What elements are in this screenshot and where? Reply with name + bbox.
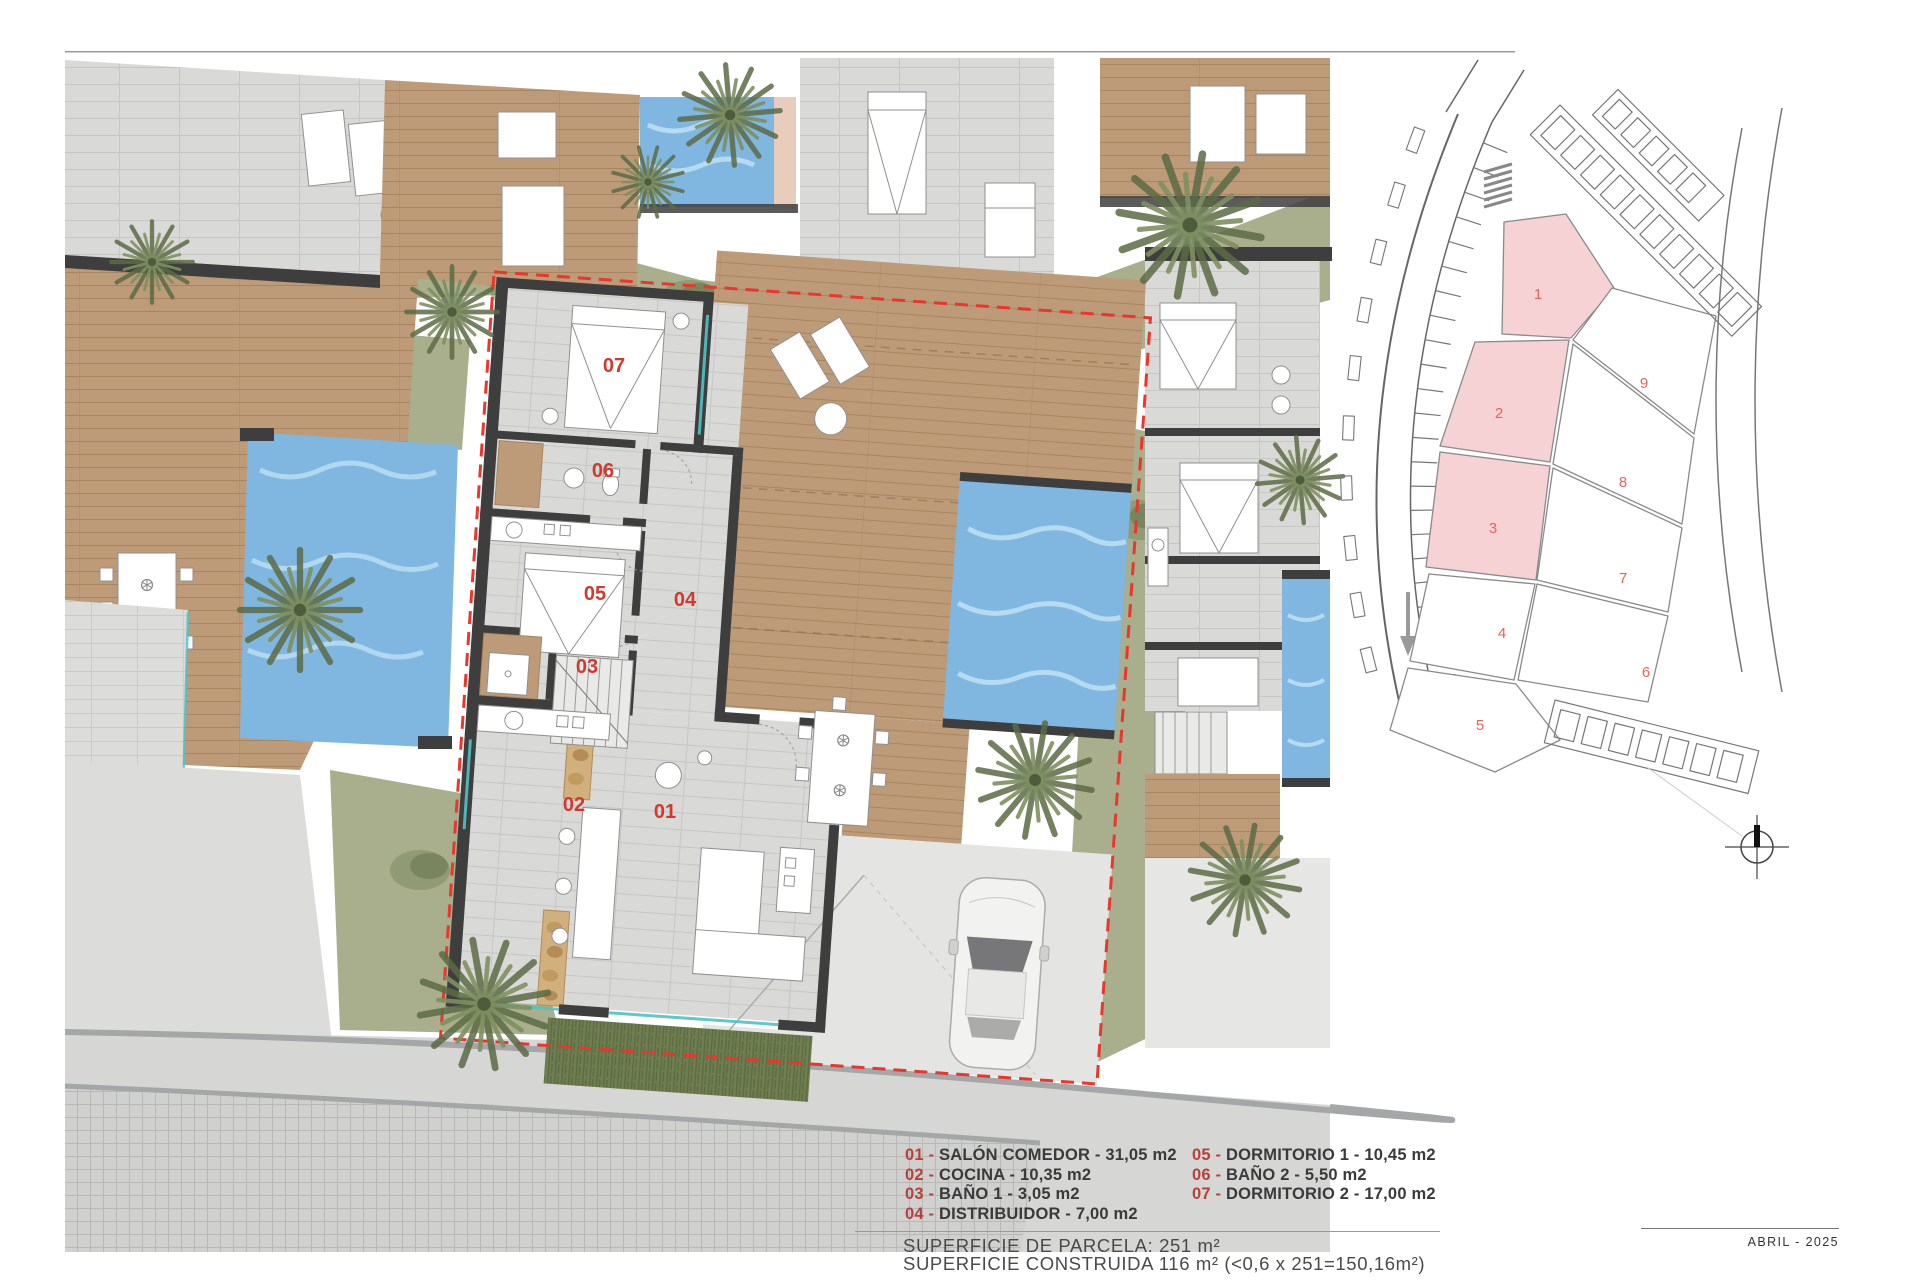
floor-plan-illustration: 01 02 03 04 05 06 07: [0, 0, 1920, 1280]
site-location-map: 1 2 3 4 5 6 7 8 9: [1341, 60, 1799, 793]
legend-label: BAÑO 1 - 3,05 m2: [939, 1185, 1080, 1203]
legend-label: SALÓN COMEDOR - 31,05 m2: [939, 1146, 1177, 1164]
built-surface-text: SUPERFICIE CONSTRUIDA 116 m² (<0,6 x 251…: [903, 1256, 1425, 1273]
summary-rule: [855, 1231, 1440, 1232]
plot-number-7: 7: [1619, 570, 1627, 587]
legend-label: COCINA - 10,35 m2: [939, 1166, 1091, 1184]
legend-row: 03BAÑO 1 - 3,05 m2: [905, 1185, 1177, 1205]
plot-2: [1440, 340, 1569, 462]
legend-num: 01: [905, 1146, 939, 1164]
legend-label: DISTRIBUIDOR - 7,00 m2: [939, 1205, 1138, 1223]
room-label-04: 04: [674, 589, 697, 611]
site-plots: [1390, 214, 1716, 772]
plot-number-2: 2: [1495, 405, 1503, 422]
date-rule: [1641, 1228, 1839, 1229]
plot-number-4: 4: [1498, 625, 1506, 642]
legend-num: 04: [905, 1205, 939, 1223]
plot-3: [1426, 452, 1550, 580]
plot-4: [1410, 574, 1535, 680]
plot-number-9: 9: [1640, 375, 1648, 392]
sheet-top-rule: [65, 51, 1515, 53]
legend-label: DORMITORIO 2 - 17,00 m2: [1226, 1185, 1436, 1203]
room-label-03: 03: [576, 656, 598, 678]
legend-row: 04DISTRIBUIDOR - 7,00 m2: [905, 1205, 1177, 1225]
building-strip-bottom: [1544, 700, 1758, 793]
legend-row: 05DORMITORIO 1 - 10,45 m2: [1192, 1146, 1436, 1166]
room-label-07: 07: [603, 355, 625, 377]
plan-sheet: 01 02 03 04 05 06 07: [0, 0, 1920, 1280]
room-label-01: 01: [654, 801, 676, 823]
date-block: ABRIL - 2025: [1641, 1228, 1839, 1249]
surface-summary: SUPERFICIE DE PARCELA: 251 m² SUPERFICIE…: [903, 1238, 1425, 1273]
legend-label: BAÑO 2 - 5,50 m2: [1226, 1166, 1367, 1184]
legend-label: DORMITORIO 1 - 10,45 m2: [1226, 1146, 1436, 1164]
legend-num: 07: [1192, 1185, 1226, 1203]
legend-row: 01SALÓN COMEDOR - 31,05 m2: [905, 1146, 1177, 1166]
legend-num: 02: [905, 1166, 939, 1184]
room-label-02: 02: [563, 794, 585, 816]
plot-number-8: 8: [1619, 474, 1627, 491]
plot-number-6: 6: [1642, 664, 1650, 681]
room-label-05: 05: [584, 583, 606, 605]
room-label-06: 06: [592, 460, 614, 482]
legend-row: 02COCINA - 10,35 m2: [905, 1166, 1177, 1186]
legend-num: 06: [1192, 1166, 1226, 1184]
villa-plan: [438, 235, 1153, 1122]
plot-number-5: 5: [1476, 717, 1484, 734]
plot-number-1: 1: [1534, 286, 1542, 303]
sheet-date: ABRIL - 2025: [1641, 1235, 1839, 1249]
legend-row: 06BAÑO 2 - 5,50 m2: [1192, 1166, 1436, 1186]
legend-row: 07DORMITORIO 2 - 17,00 m2: [1192, 1185, 1436, 1205]
legend-num: 03: [905, 1185, 939, 1203]
plot-number-3: 3: [1489, 520, 1497, 537]
legend-num: 05: [1192, 1146, 1226, 1164]
compass-icon: [1648, 768, 1789, 879]
